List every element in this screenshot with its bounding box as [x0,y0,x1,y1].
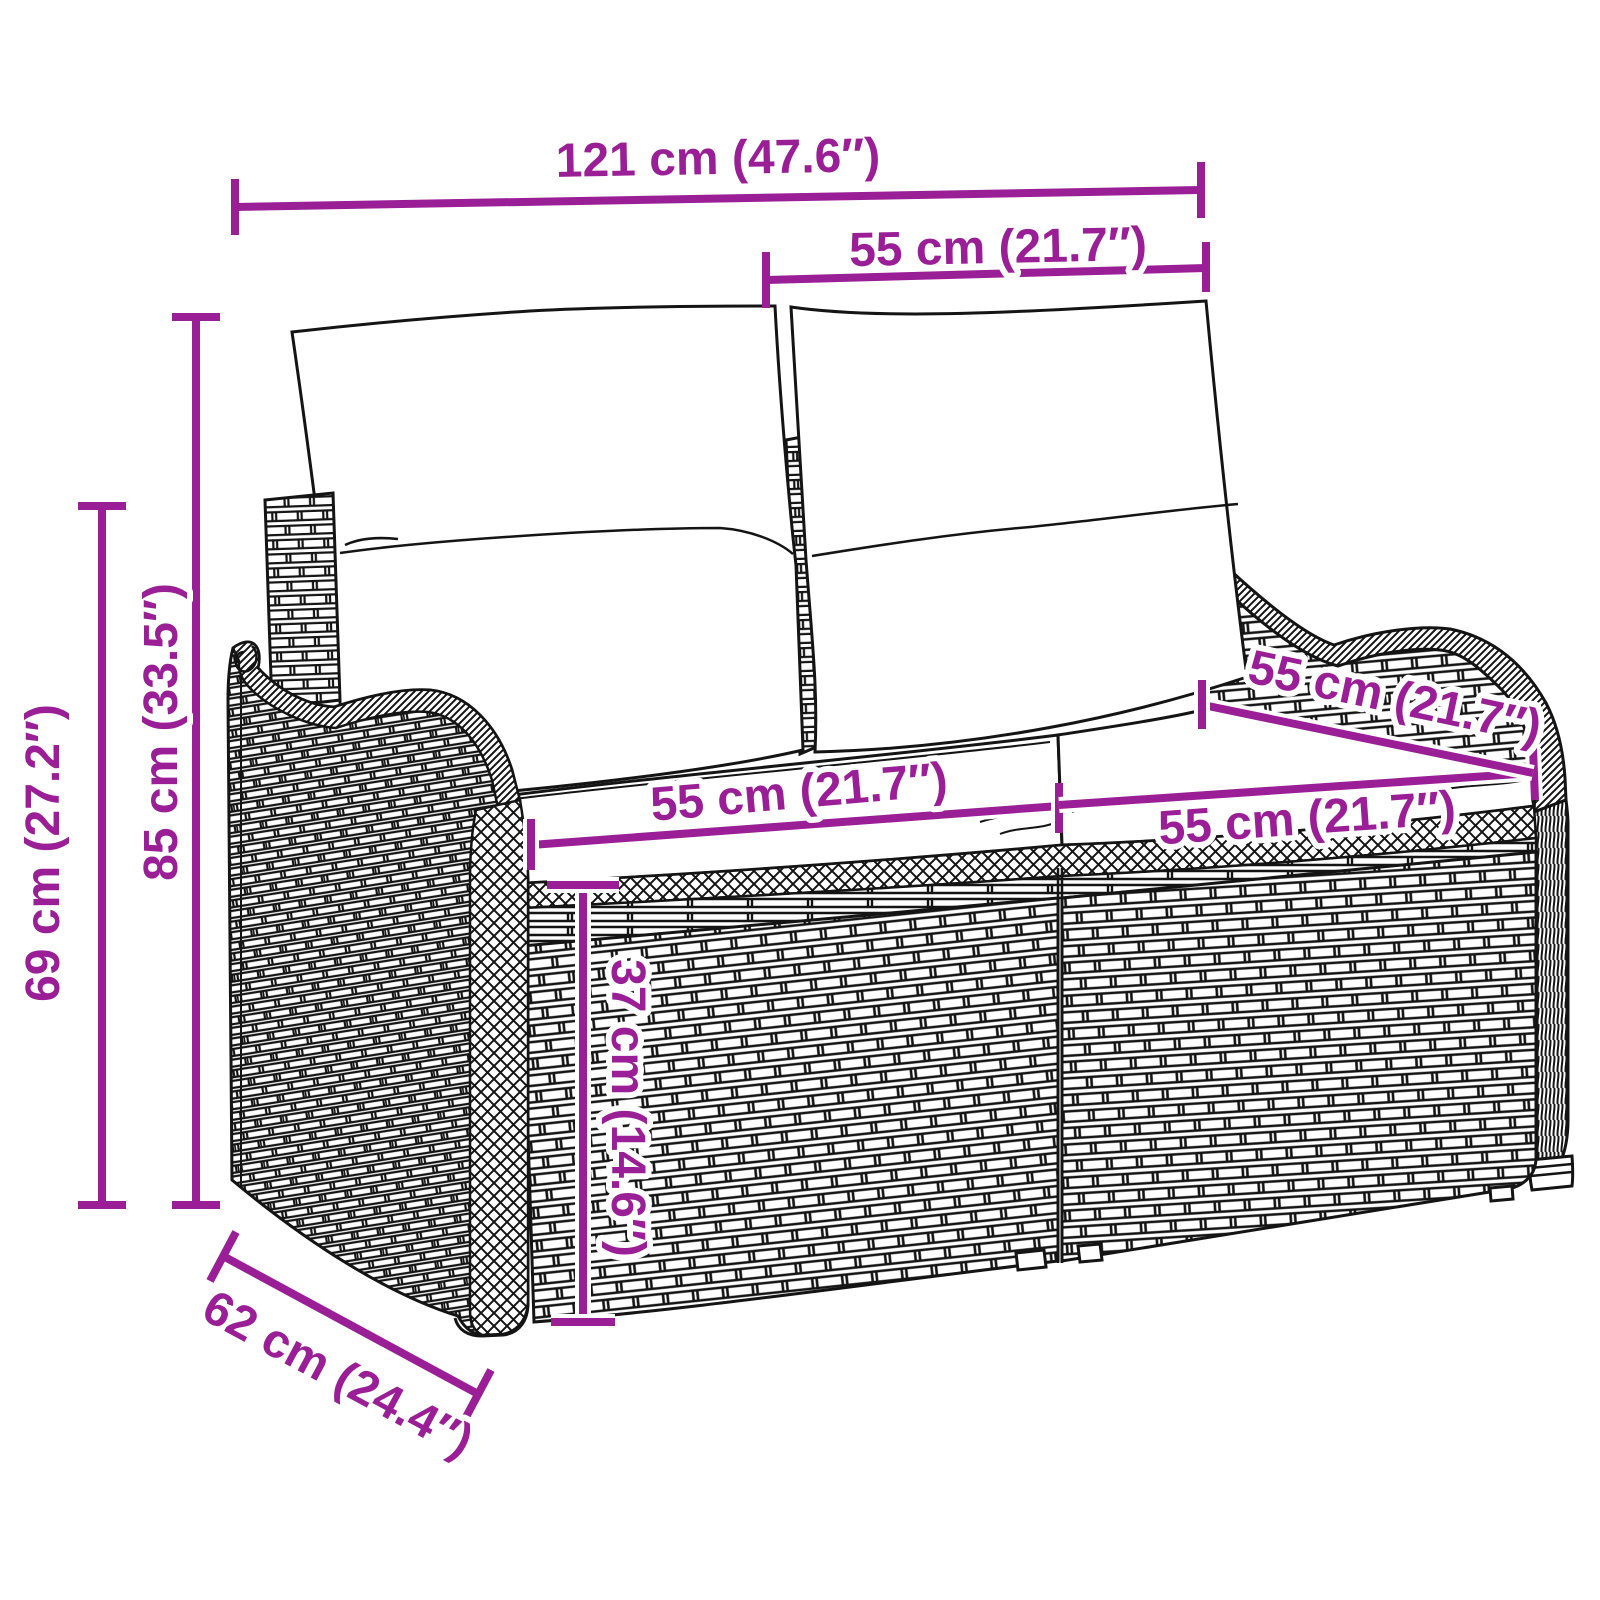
svg-text:55 cm (21.7″): 55 cm (21.7″) [849,218,1148,277]
svg-text:37 cm (14.6″): 37 cm (14.6″) [601,959,654,1257]
svg-text:121 cm (47.6″): 121 cm (47.6″) [555,129,880,188]
svg-text:85 cm (33.5″): 85 cm (33.5″) [135,583,188,881]
svg-text:69 cm (27.2″): 69 cm (27.2″) [17,704,70,1002]
